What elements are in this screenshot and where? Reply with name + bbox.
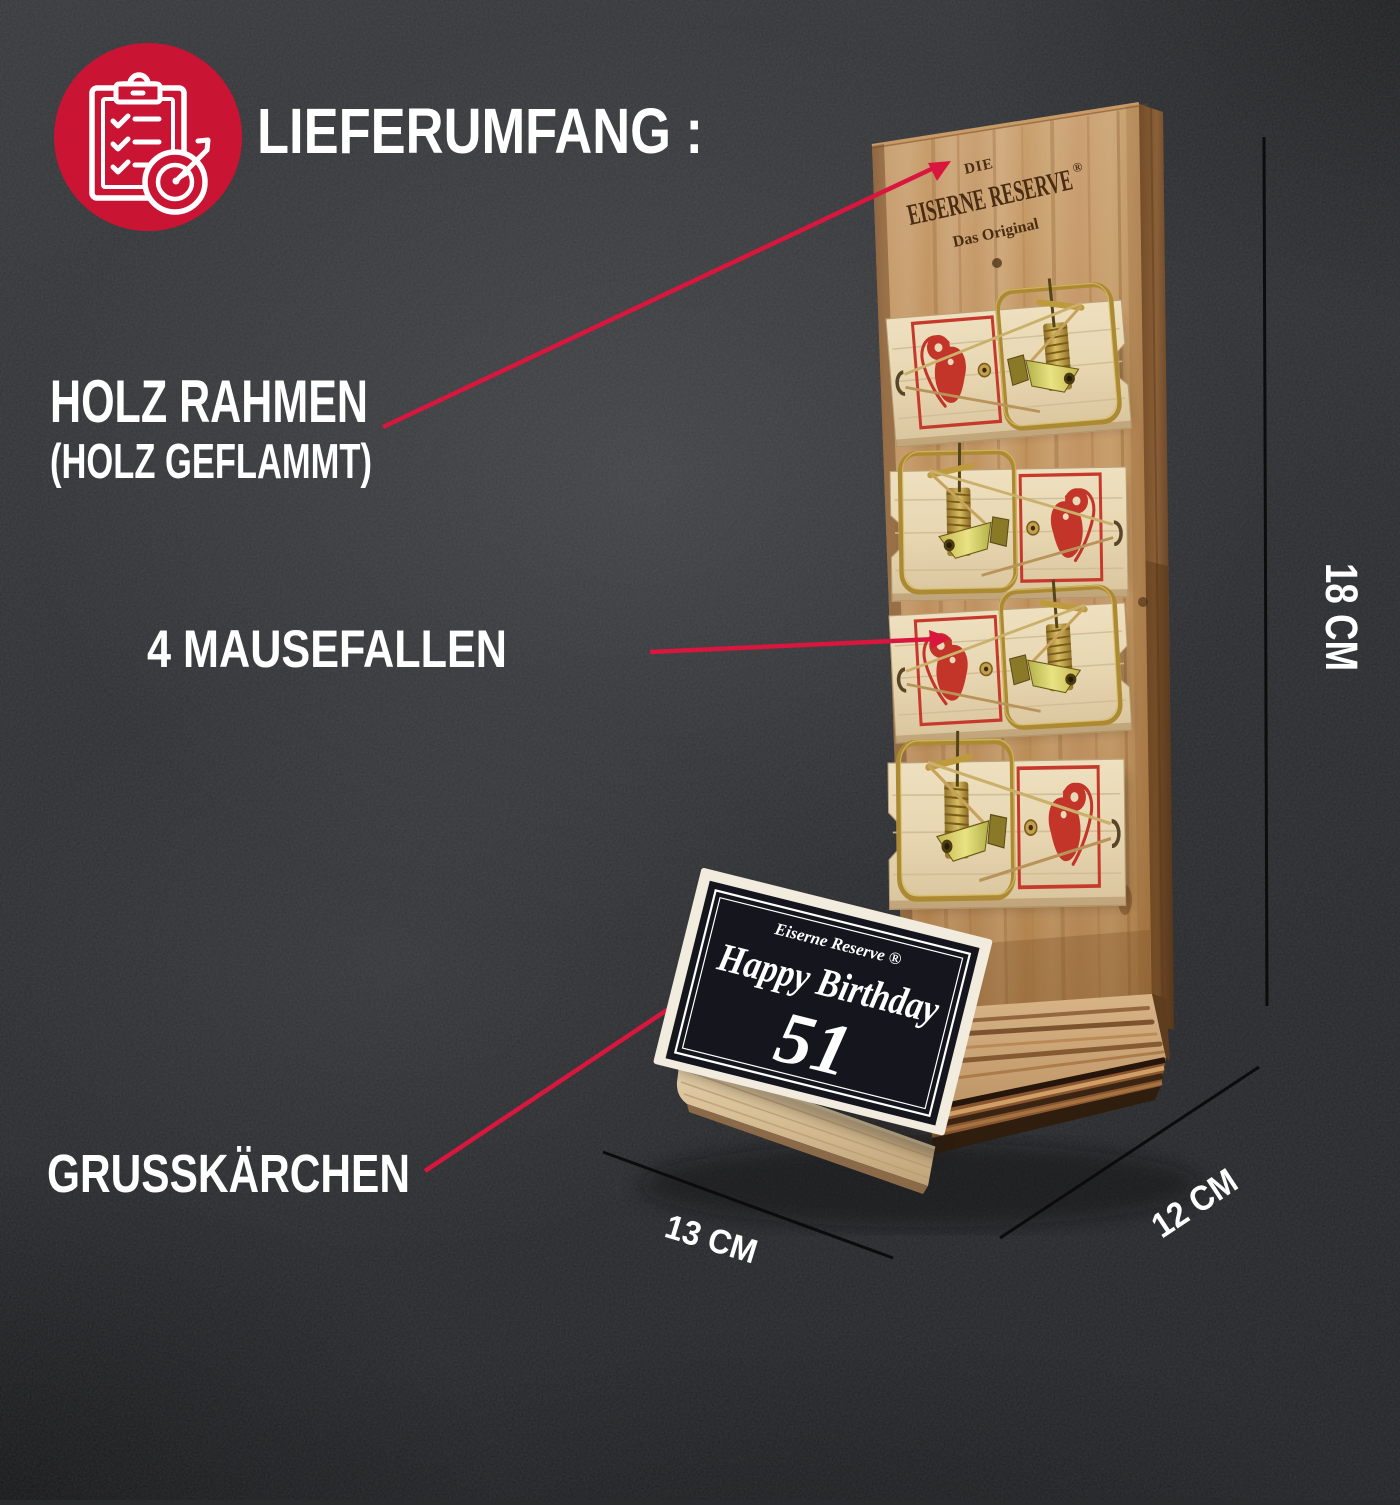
svg-text:LIEFERUMFANG :: LIEFERUMFANG :: [257, 95, 703, 167]
svg-text:4 MAUSEFALLEN: 4 MAUSEFALLEN: [147, 620, 507, 679]
svg-text:GRUSSKÄRCHEN: GRUSSKÄRCHEN: [47, 1144, 410, 1204]
svg-text:18 CM: 18 CM: [1316, 563, 1367, 671]
svg-text:(HOLZ GEFLAMMT): (HOLZ GEFLAMMT): [50, 435, 372, 489]
svg-text:HOLZ RAHMEN: HOLZ RAHMEN: [50, 368, 368, 435]
